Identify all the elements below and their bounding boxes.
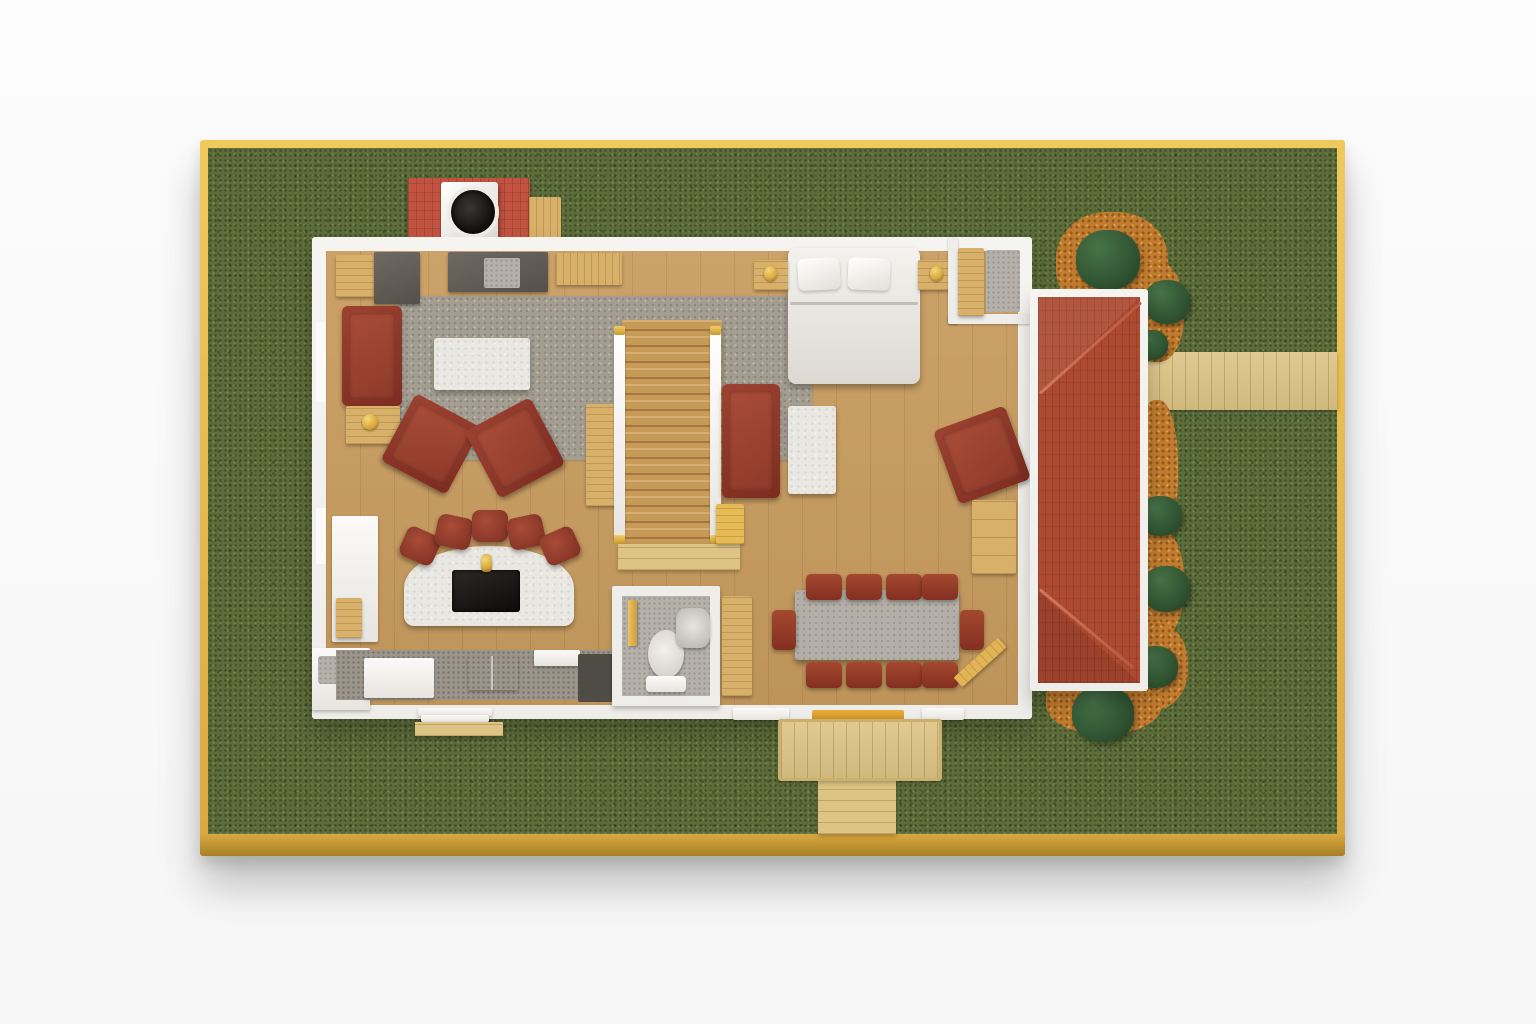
counter-shelf — [534, 650, 580, 666]
dining-chair — [922, 574, 958, 600]
dining-chair — [772, 610, 796, 650]
dining-chair — [846, 574, 882, 600]
pillow-left — [797, 257, 841, 291]
corner-dark-unit — [374, 252, 420, 304]
left-wall-window — [316, 508, 326, 564]
dining-chair — [886, 574, 922, 600]
fridge-wood-inset — [336, 598, 362, 638]
bedside-lamp-right — [930, 266, 943, 281]
frame-front-edge — [200, 834, 1345, 856]
toilet-tank — [646, 676, 686, 692]
kitchen-sink — [468, 656, 518, 690]
blanket-fold — [790, 302, 918, 305]
dining-chair — [806, 574, 842, 600]
model-photo — [0, 0, 1536, 1024]
dining-chair — [960, 610, 984, 650]
bathroom-door — [628, 600, 637, 646]
shrub — [1072, 686, 1134, 742]
living-room-sofa — [342, 306, 402, 406]
coffee-table — [434, 338, 530, 390]
wood-dresser — [972, 500, 1016, 574]
kitchen-steps — [421, 715, 489, 722]
pillow-right — [847, 257, 890, 290]
linen-cabinet — [722, 596, 752, 696]
media-console — [556, 253, 622, 285]
corner-wood-cabinet — [336, 255, 374, 297]
closet-wardrobe — [958, 248, 984, 316]
left-wall-window — [316, 322, 326, 402]
marble-side-table — [788, 406, 836, 494]
bathroom-sink — [676, 608, 710, 648]
chimney-flue — [447, 186, 499, 238]
closet-stone-mat — [986, 250, 1020, 312]
chimney-wood-pad — [529, 197, 561, 238]
stair-landing — [618, 544, 740, 570]
bar-stool — [472, 510, 508, 542]
red-loveseat — [722, 384, 780, 498]
back-deck — [778, 719, 942, 781]
gold-trophy — [481, 554, 492, 572]
dining-chair — [806, 662, 842, 688]
bar-screen-inset — [452, 570, 520, 612]
bedside-lamp-left — [764, 266, 777, 281]
dining-chair — [922, 662, 958, 688]
gold-step-box — [716, 504, 744, 544]
side-walkway-east — [1146, 352, 1337, 410]
kitchen-step-pad — [415, 722, 503, 736]
dining-chair — [846, 662, 882, 688]
stair-railing-left — [614, 328, 625, 542]
porch-roof — [1038, 297, 1140, 683]
dining-table — [795, 590, 959, 660]
shrub — [1076, 230, 1140, 290]
shrub — [1144, 280, 1190, 324]
front-path-south — [818, 772, 896, 834]
dishwasher — [364, 658, 434, 698]
table-lamp — [362, 414, 378, 430]
dining-chair — [886, 662, 922, 688]
fireplace-firebox — [484, 258, 520, 288]
shrub — [1142, 566, 1190, 612]
closet-wall-vertical — [948, 238, 958, 324]
staircase — [622, 320, 722, 546]
